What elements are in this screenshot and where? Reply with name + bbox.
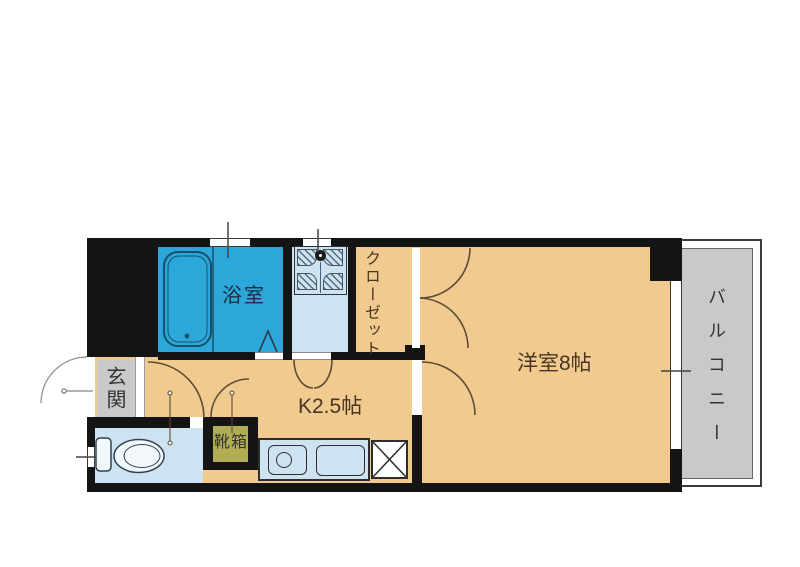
refrigerator-cross-icon — [373, 442, 406, 477]
washroom-door-left-arc — [294, 360, 313, 388]
closet-door-lower-arc — [420, 298, 468, 348]
shoe-box-label: 靴箱 — [214, 435, 248, 451]
closet-door-upper-arc — [420, 248, 470, 298]
kitchen-label: K2.5帖 — [298, 396, 362, 417]
balcony-label: バルコニー — [707, 287, 725, 462]
entrance-label: 玄関 — [104, 366, 124, 416]
toilet-icon — [96, 438, 164, 473]
washroom-door-right-arc — [314, 360, 332, 388]
shoebox-door-arc — [211, 379, 249, 417]
bath-folding-door-icon — [259, 331, 277, 352]
room-door-arc — [422, 362, 475, 415]
entrance-door-icon — [41, 357, 93, 403]
bathroom-label: 浴室 — [222, 286, 266, 306]
western-room-label: 洋室8帖 — [517, 353, 592, 374]
closet-label: クローゼット — [360, 250, 380, 314]
bathtub-icon — [164, 247, 213, 352]
hall-door-arc — [148, 362, 204, 418]
door-swing-arcs — [148, 248, 475, 418]
linework-layer — [0, 0, 800, 567]
floor-plan: 浴室 クローゼット 洋室8帖 バルコニー 玄関 靴箱 K2.5帖 — [0, 0, 800, 567]
